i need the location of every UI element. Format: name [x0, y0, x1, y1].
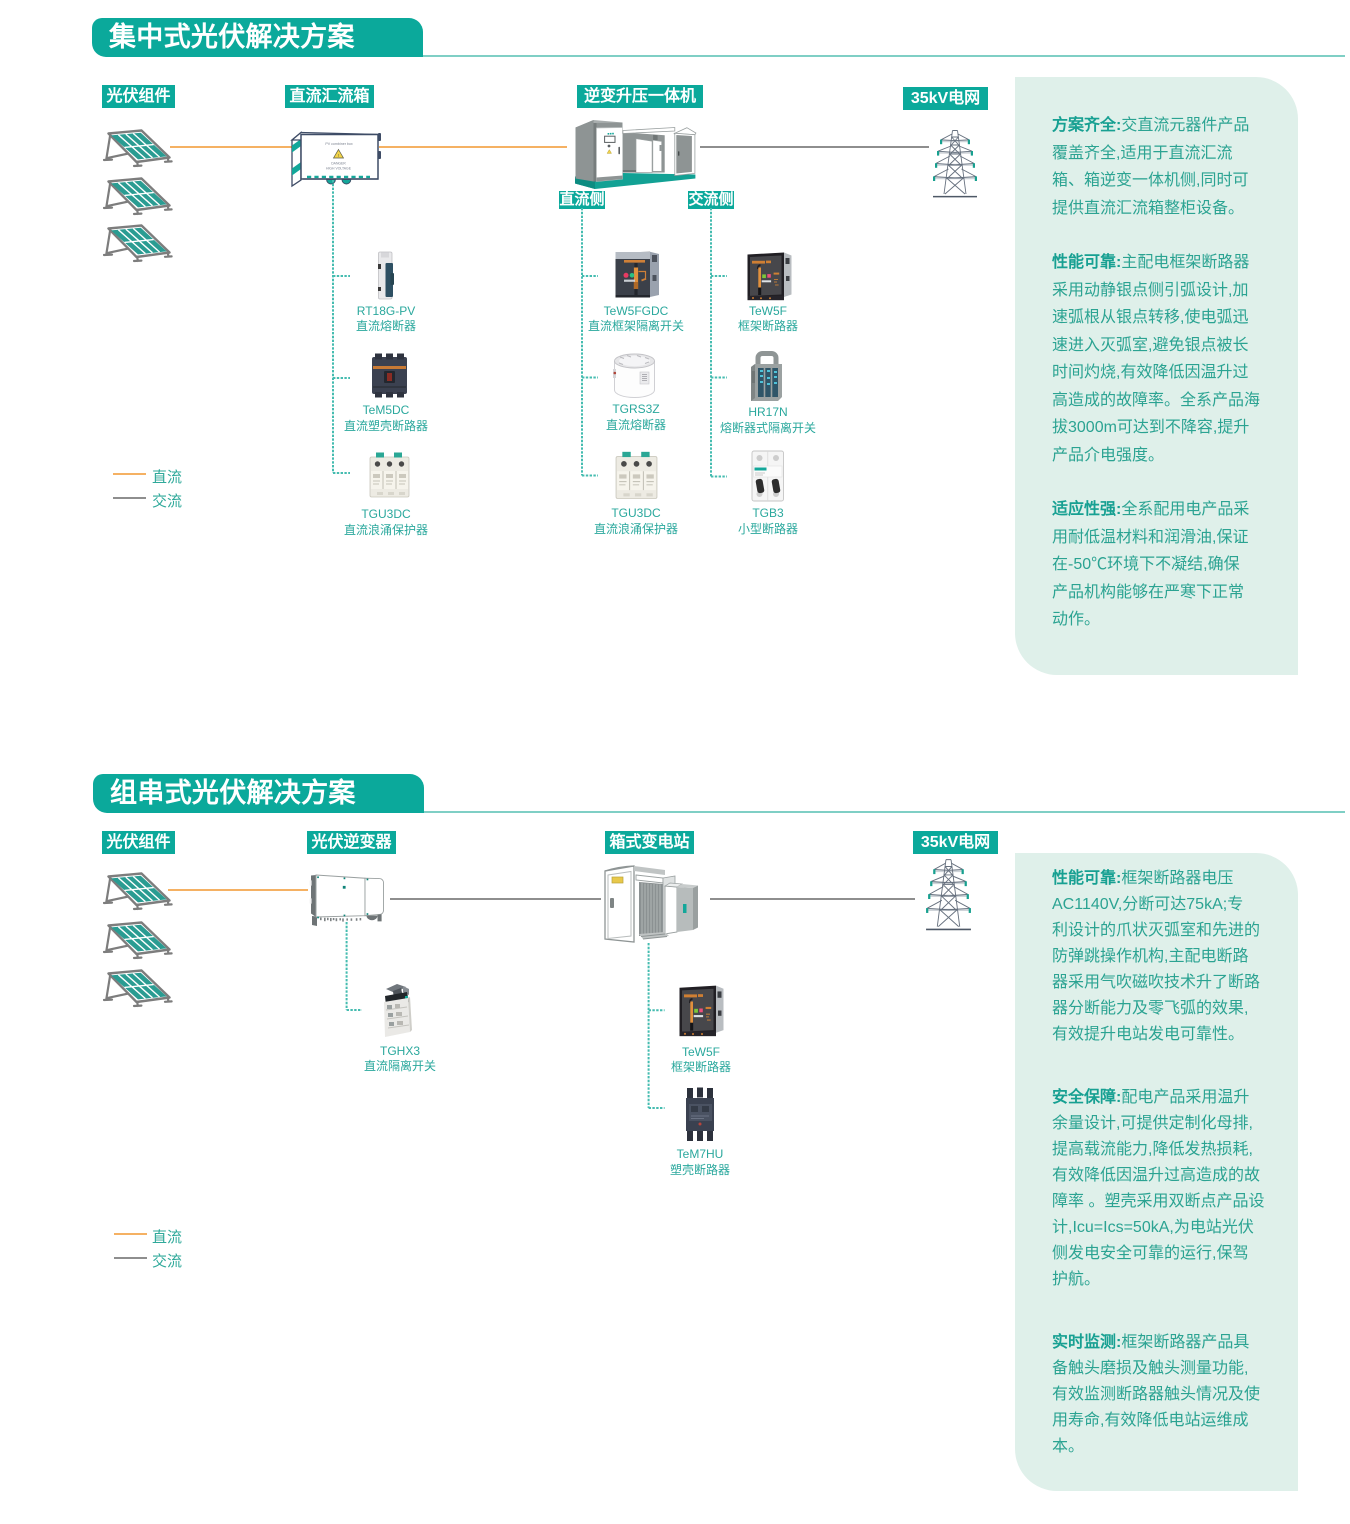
svg-text:HIGH VOLTAGE: HIGH VOLTAGE	[326, 167, 352, 171]
svg-text:!: !	[338, 153, 339, 158]
svg-text:DANGER: DANGER	[331, 162, 346, 166]
svg-text:PV combiner box: PV combiner box	[325, 142, 353, 146]
